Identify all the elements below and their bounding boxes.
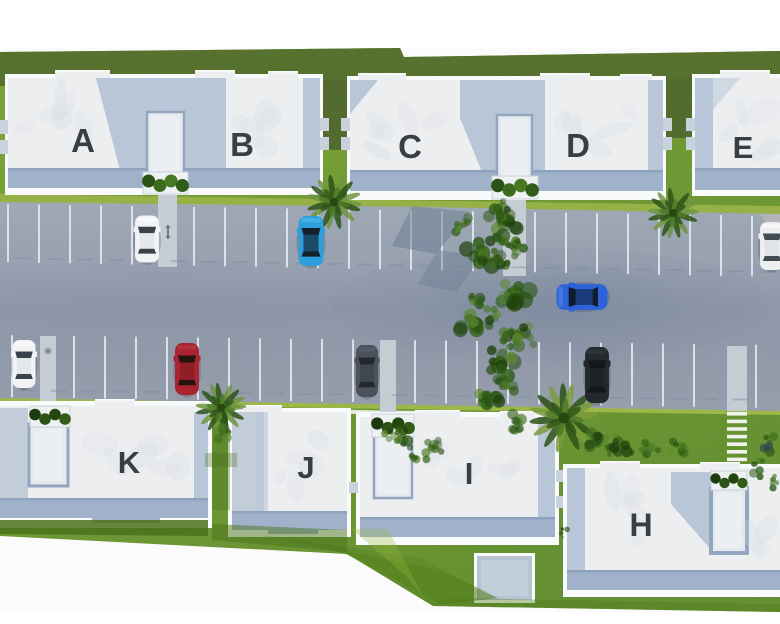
svg-text:D: D [566,127,590,164]
svg-text:I: I [465,456,474,491]
svg-text:J: J [297,450,314,485]
svg-text:E: E [733,130,754,165]
svg-text:B: B [230,126,254,163]
svg-text:A: A [71,122,95,159]
svg-text:H: H [629,507,652,543]
svg-text:C: C [398,128,422,165]
svg-text:K: K [118,445,141,480]
